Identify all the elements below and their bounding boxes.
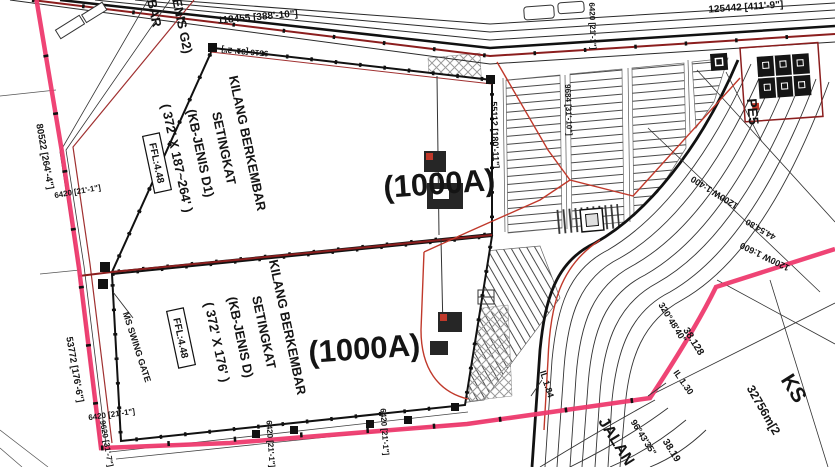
site-plan-canvas: BAR ENIS G2) KILANG BERKEMBAR SETINGKAT … [0,0,835,467]
drain-1-label: 1200W 1:400 [689,174,740,211]
road-island [55,15,84,38]
parking-row-c [632,63,686,216]
dim-right-inner: 9684 [31'-10"] [563,84,574,136]
il-184-label: IL 1.84 [538,369,556,399]
neighbor-label-fragment: BAR [144,0,165,29]
parcel-ks-label: KS [776,370,811,407]
dim-gate-e: 6420 [21'-1"] [378,408,390,456]
road-island [82,2,107,22]
dim-left-upper: 80522 [264'-4"] [33,123,55,190]
guard-house-inner [585,213,598,226]
bearing-1-label: 320°48'40" [656,301,688,345]
manhole-box [710,53,728,71]
neighbor-label-fragment: ENIS G2) [169,0,195,55]
pe5-label: PE5 [744,98,762,126]
radius-2-label: 38.19 [660,437,683,464]
road-island [524,5,555,20]
il-130-label: IL 1.30 [671,368,695,397]
manhole-outline [710,53,728,71]
parking-row-a [506,75,562,233]
parcel-ks-area-label: 32756m[2 [744,383,784,438]
guard-house [580,208,604,232]
bearing-2-label: 96°43'35" [629,418,659,457]
dim-gate-a: 6420 [21'-1"] [54,183,102,200]
dim-top-right: 125442 [411'-9"] [708,0,784,16]
site-plan-drawing: BAR ENIS G2) KILANG BERKEMBAR SETINGKAT … [0,0,835,467]
dim-left-lower: 53772 [176'-6"] [63,336,85,403]
dim-top-left: 118455 [388'-10"] [217,9,298,27]
parking-row-b [570,69,624,227]
road-island [558,1,585,14]
dim-gate-b: 6420 [21'-1"] [587,2,598,50]
dim-gate-d: 6420 [21'-1"] [264,420,276,467]
